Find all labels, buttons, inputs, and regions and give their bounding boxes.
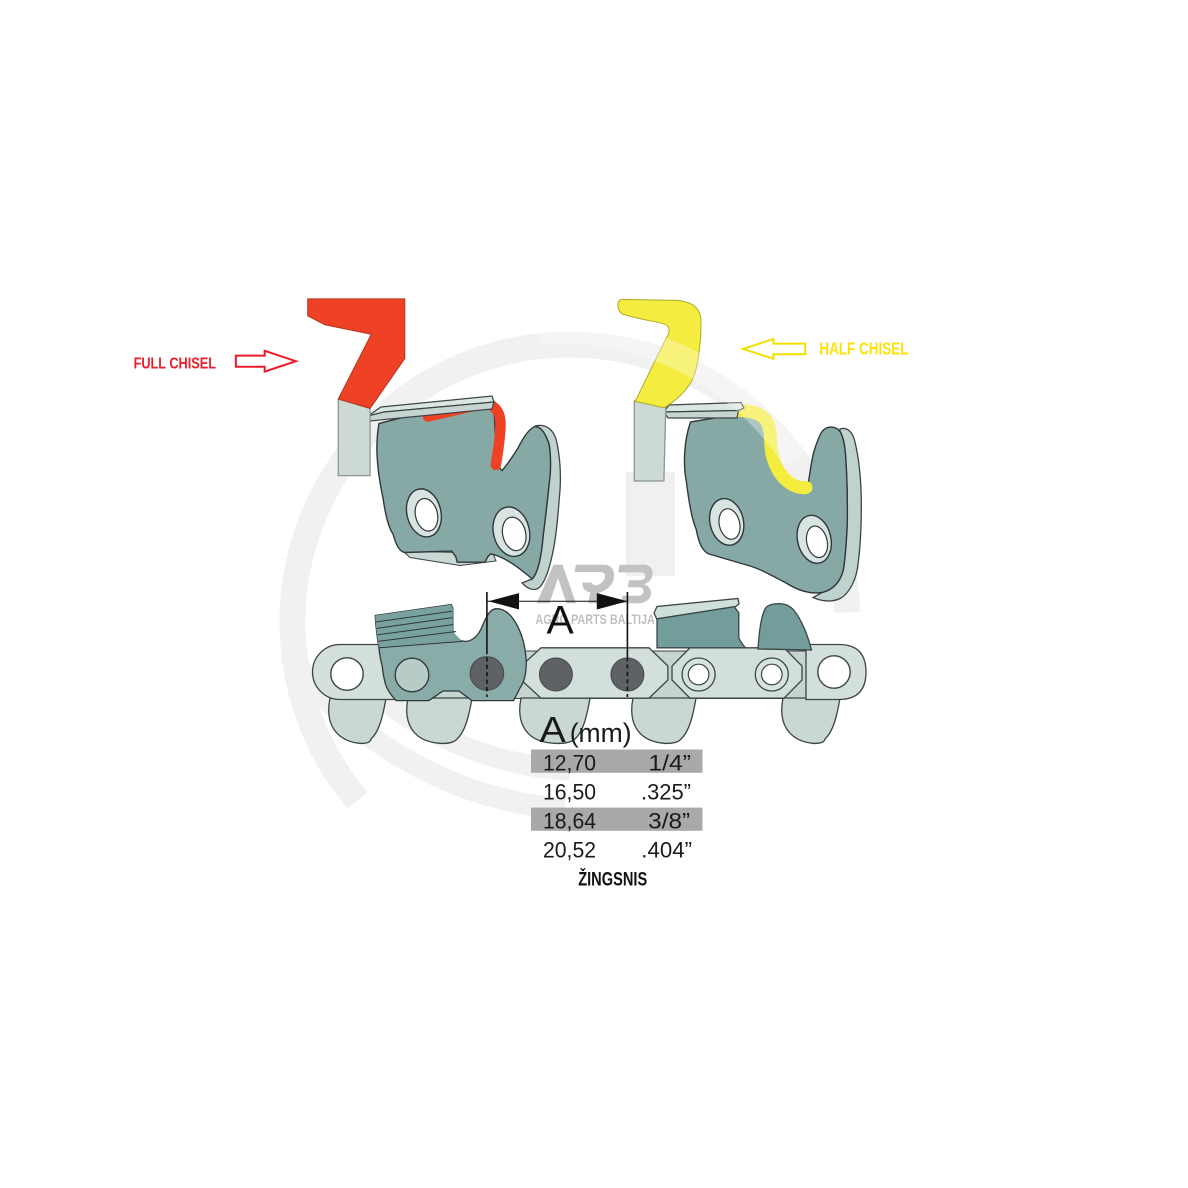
svg-text:3/8”: 3/8” bbox=[648, 809, 690, 834]
svg-text:ŽINGSNIS: ŽINGSNIS bbox=[578, 869, 647, 891]
svg-text:HALF CHISEL: HALF CHISEL bbox=[819, 339, 908, 359]
svg-text:18,64: 18,64 bbox=[543, 809, 596, 834]
svg-text:1/4”: 1/4” bbox=[648, 750, 691, 775]
svg-text:20,52: 20,52 bbox=[543, 838, 596, 863]
svg-text:.325”: .325” bbox=[641, 780, 691, 805]
svg-text:(mm): (mm) bbox=[570, 718, 632, 748]
svg-text:A: A bbox=[540, 709, 567, 750]
svg-text:16,50: 16,50 bbox=[543, 780, 596, 805]
svg-text:.404”: .404” bbox=[641, 838, 692, 863]
svg-text:FULL CHISEL: FULL CHISEL bbox=[134, 355, 217, 372]
svg-text:A: A bbox=[547, 599, 575, 643]
svg-text:12,70: 12,70 bbox=[543, 750, 596, 775]
